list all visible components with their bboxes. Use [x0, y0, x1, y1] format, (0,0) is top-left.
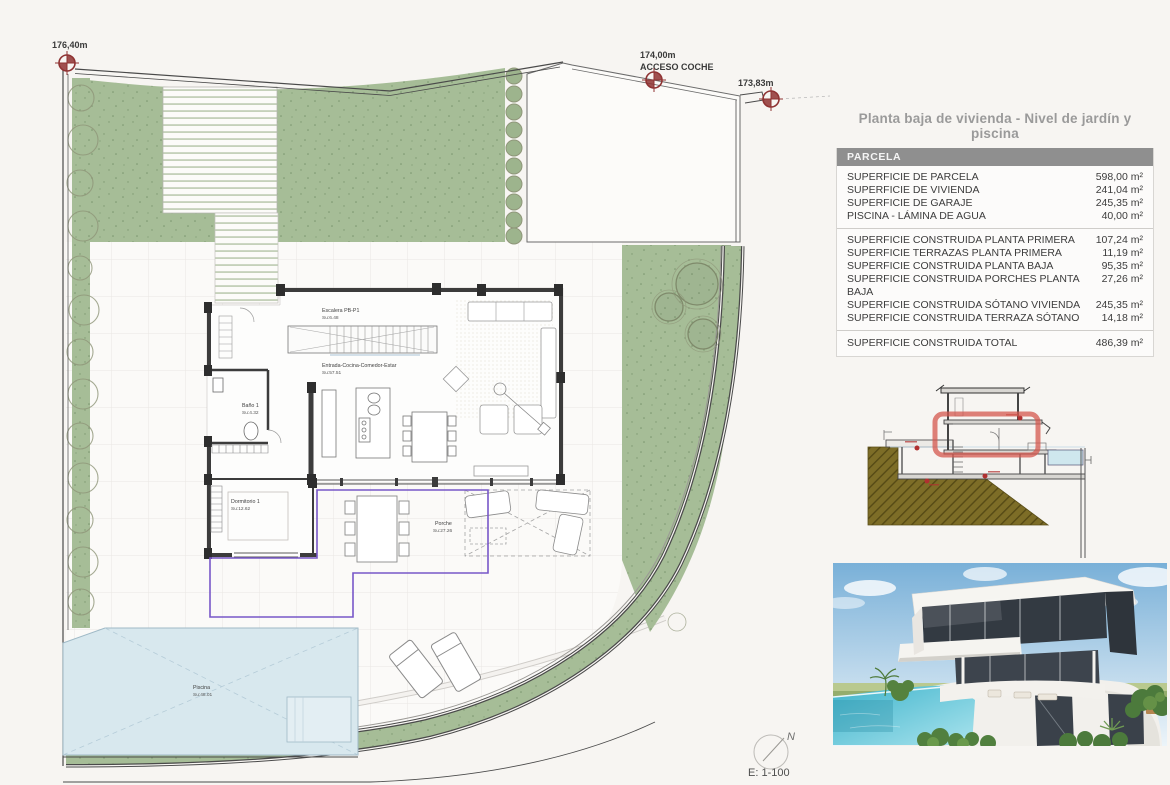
row-label: SUPERFICIE DE PARCELA	[847, 171, 979, 184]
room-area-escalera: Su:6.48	[322, 315, 339, 321]
site-plan: Piscina Su:48.01	[52, 40, 830, 782]
total-label: SUPERFICIE CONSTRUIDA TOTAL	[847, 337, 1017, 349]
row-value: 40,00 m²	[1102, 210, 1143, 223]
kitchen	[322, 388, 390, 458]
row-value: 245,35 m²	[1096, 299, 1143, 312]
section-pool	[1048, 450, 1083, 465]
garden-top	[88, 68, 522, 244]
north-arrow-icon: N	[754, 731, 795, 769]
marker-label: 174,00m	[640, 50, 676, 60]
row-label: SUPERFICIE DE GARAJE	[847, 197, 972, 210]
table-row: SUPERFICIE TERRAZAS PLANTA PRIMERA11,19 …	[837, 247, 1153, 260]
row-value: 14,18 m²	[1102, 312, 1143, 325]
row-value: 598,00 m²	[1096, 171, 1143, 184]
marker-sublabel: ACCESO COCHE	[640, 62, 714, 72]
section-earth	[868, 447, 1048, 525]
drawing-sheet: Piscina Su:48.01	[0, 0, 1170, 785]
parcela-table-header: PARCELA	[837, 148, 1153, 166]
render-3d	[825, 563, 1170, 752]
row-label: SUPERFICIE CONSTRUIDA TERRAZA SÓTANO	[847, 312, 1079, 325]
parcela-table-body: SUPERFICIE DE PARCELA598,00 m²SUPERFICIE…	[837, 166, 1153, 330]
room-area-porche: Su:27.26	[433, 528, 453, 534]
dining-set	[403, 412, 456, 462]
table-row-total: SUPERFICIE CONSTRUIDA TOTAL 486,39 m²	[837, 330, 1153, 356]
row-label: SUPERFICIE CONSTRUIDA SÓTANO VIVIENDA	[847, 299, 1080, 312]
room-label-bano: Baño 1	[242, 403, 259, 409]
pool: Piscina Su:48.01	[63, 628, 358, 755]
driveway	[527, 63, 740, 242]
table-row: SUPERFICIE CONSTRUIDA PORCHES PLANTA BAJ…	[837, 273, 1153, 299]
table-row: SUPERFICIE DE PARCELA598,00 m²	[837, 171, 1153, 184]
row-label: SUPERFICIE CONSTRUIDA PORCHES PLANTA BAJ…	[847, 273, 1102, 299]
table-row: SUPERFICIE DE GARAJE245,35 m²	[837, 197, 1153, 210]
room-area-entrada: Su:57.51	[322, 370, 342, 376]
survey-marker-icon	[55, 51, 79, 75]
north-label: N	[787, 731, 795, 743]
row-label: PISCINA - LÁMINA DE AGUA	[847, 210, 986, 223]
table-row: SUPERFICIE CONSTRUIDA PLANTA PRIMERA107,…	[837, 234, 1153, 247]
row-value: 241,04 m²	[1096, 184, 1143, 197]
room-area-bano: Su:4.32	[242, 410, 259, 416]
section-drawing	[868, 385, 1091, 558]
room-label-dormitorio: Dormitorio 1	[231, 499, 260, 505]
row-value: 107,24 m²	[1096, 234, 1143, 247]
table-row: SUPERFICIE CONSTRUIDA PLANTA BAJA95,35 m…	[837, 260, 1153, 273]
marker-label: 173,83m	[738, 78, 774, 88]
table-row: SUPERFICIE CONSTRUIDA TERRAZA SÓTANO14,1…	[837, 312, 1153, 325]
table-row: SUPERFICIE CONSTRUIDA SÓTANO VIVIENDA245…	[837, 299, 1153, 312]
row-label: SUPERFICIE DE VIVIENDA	[847, 184, 979, 197]
room-area-dormitorio: Su:12.62	[231, 506, 251, 512]
table-row: SUPERFICIE DE VIVIENDA241,04 m²	[837, 184, 1153, 197]
table-row: PISCINA - LÁMINA DE AGUA40,00 m²	[837, 210, 1153, 223]
row-value: 27,26 m²	[1102, 273, 1143, 299]
room-label-piscina: Piscina	[193, 685, 210, 691]
room-area-piscina: Su:48.01	[193, 692, 213, 698]
row-label: SUPERFICIE CONSTRUIDA PLANTA BAJA	[847, 260, 1053, 273]
row-value: 11,19 m²	[1102, 247, 1143, 260]
parcela-table: PARCELA SUPERFICIE DE PARCELA598,00 m²SU…	[836, 148, 1154, 357]
survey-marker-icon	[759, 87, 783, 111]
interior-stairs	[288, 326, 437, 355]
room-label-escalera: Escalera PB-P1	[322, 308, 359, 314]
table-group-1: SUPERFICIE CONSTRUIDA PLANTA PRIMERA107,…	[837, 228, 1153, 330]
porch-furniture	[345, 496, 409, 562]
page-title: Planta baja de vivienda - Nivel de jardí…	[836, 111, 1154, 141]
table-group-0: SUPERFICIE DE PARCELA598,00 m²SUPERFICIE…	[837, 166, 1153, 228]
row-value: 95,35 m²	[1102, 260, 1143, 273]
total-value: 486,39 m²	[1096, 337, 1143, 349]
room-label-porche: Porche	[435, 521, 452, 527]
row-label: SUPERFICIE CONSTRUIDA PLANTA PRIMERA	[847, 234, 1075, 247]
room-label-entrada: Entrada-Cocina-Comedor-Estar	[322, 363, 397, 369]
row-label: SUPERFICIE TERRAZAS PLANTA PRIMERA	[847, 247, 1062, 260]
row-value: 245,35 m²	[1096, 197, 1143, 210]
scale-label: E: 1-100	[748, 767, 790, 779]
marker-label: 176,40m	[52, 40, 88, 50]
